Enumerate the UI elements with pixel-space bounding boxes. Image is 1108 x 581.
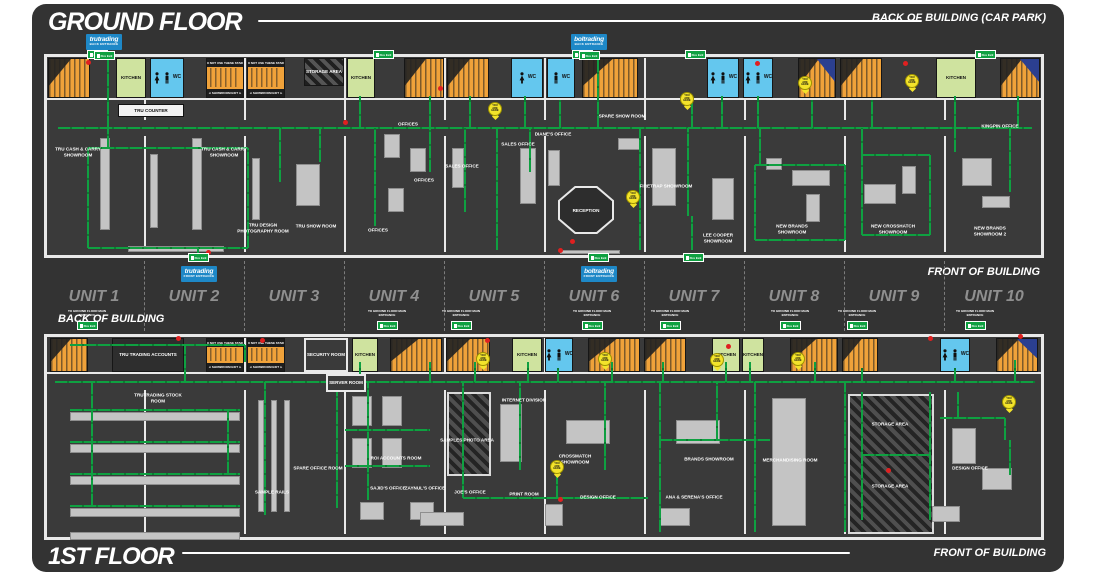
evacuation-route [759,128,761,165]
pin-label: YOUAREHERE [626,190,640,204]
running-man-icon [90,53,93,57]
unit-separator [944,261,945,331]
running-man-icon [978,53,981,57]
wc-label: WC [764,75,772,81]
fire-exit-label: Fire Exit [458,324,470,328]
room-label: SALES OFFICE [489,141,547,147]
pin-label: YOUAREHERE [598,352,612,366]
evacuation-route [1009,440,1011,475]
furniture [284,400,290,512]
you-are-here-pin: YOUAREHERE [488,102,503,121]
room-label: NEW BRANDS SHOWROOM [763,224,821,235]
room-label: DIANE'S OFFICE [524,131,582,137]
evacuation-route [429,362,431,382]
wc-label: WC [528,75,536,81]
you-are-here-pin: YOUAREHERE [476,352,491,371]
entrance-label: BACK ENTRANCE [90,43,119,47]
you-are-here-pin: YOUAREHERE [798,76,813,95]
wc-male-icon [552,72,560,84]
furniture [382,396,402,426]
small-room-label: SERVER ROOM [329,381,363,386]
stair-direction-note: TO GROUND FLOOR MAIN ENTRANCE [67,310,107,317]
room-label: KINGPIN OFFICE [971,123,1029,129]
evacuation-route [861,128,863,155]
evacuation-route [861,155,863,235]
furniture [410,148,426,172]
fire-alarm-dot [343,120,348,125]
band-top-exit-sign: Fire Exit [188,253,209,262]
room-label: DESIGN OFFICE [569,494,627,500]
unit-label-5: UNIT 5 [444,288,544,306]
stairs-cell [582,58,638,98]
stair-treads [210,348,240,361]
fire-exit-label: Fire Exit [692,53,704,57]
stairs-cell [404,58,444,98]
entrance-exit-sign: Fire Exit [579,51,600,60]
furniture [384,134,400,158]
unit-label-4: UNIT 4 [344,288,444,306]
unit-wall [344,136,346,252]
wc-female-icon [709,72,717,84]
wc-female-icon [518,72,526,84]
showroom-exit-label: ◄ SHOWROOM EXIT ► [248,89,284,97]
furniture [932,506,960,522]
unit-wall [344,58,346,120]
wc-cell: WC [511,58,543,98]
unit-wall [644,390,646,534]
evacuation-route [345,429,430,431]
room-label: OFFICES [349,227,407,233]
room-label: NEW BRANDS SHOWROOM 2 [961,226,1019,237]
pin-label: YOUAREHERE [550,460,564,474]
stairs-cell [1000,58,1040,98]
evacuation-route [527,362,529,382]
entrance-badge: boltradingBACK ENTRANCE [571,34,607,50]
fire-exit-sign: Fire Exit [373,50,394,59]
you-are-here-pin: YOUAREHERE [626,190,641,209]
unit-wall [444,136,446,252]
evacuation-route [107,56,109,128]
stairs-cell [644,338,686,372]
furniture [352,396,372,426]
room-label: SPARE SHOW ROOM [593,113,651,119]
evacuation-route [929,155,931,235]
showroom-exit-label: ◄ SHOWROOM EXIT ► [248,363,284,371]
furniture [382,438,402,468]
running-man-icon [663,324,666,328]
fire-exit-sign: Fire Exit [685,50,706,59]
kitchen-label: KITCHEN [517,353,537,358]
pin-label: YOUAREHERE [1002,395,1016,409]
first-floor-title: 1ST FLOOR [48,543,174,571]
evacuation-route [264,382,266,515]
running-man-icon [686,256,689,260]
evacuation-route [954,368,956,382]
evacuation-route [871,100,873,128]
fire-exit-label: Fire Exit [854,324,866,328]
furniture [806,194,820,222]
evacuation-route [1009,128,1011,192]
fire-exit-label: Fire Exit [589,324,601,328]
fire-alarm-dot [176,336,181,341]
pin-label: YOUAREHERE [905,74,919,88]
do-not-use-stairs-label: DO NOT USE THESE STAIRS [248,59,284,67]
evacuation-route [244,345,246,362]
evacuation-route [754,165,756,240]
storage-label: STORAGE AREA [306,70,342,75]
wc-female-icon [153,72,161,84]
wc-cell: WC [707,58,739,98]
evacuation-route [429,128,431,172]
evacuation-route [70,505,240,507]
pin-label: YOUAREHERE [680,92,694,106]
furniture [388,188,404,212]
unit-separator [144,261,145,331]
stairs-cell [996,338,1038,372]
evacuation-route [359,96,361,128]
entrance-badge: trutradingFRONT ENTRANCE [181,266,217,282]
showroom-front-sign: DO NOT USE THESE STAIRS◄ SHOWROOM EXIT ► [247,58,285,98]
evacuation-route [862,454,930,456]
kitchen-cell: KITCHEN [352,338,378,372]
storage-cell: STORAGE AREA [304,58,344,86]
footer-rule [182,552,850,554]
room-label: MERCHANDISING ROOM [761,457,819,463]
running-man-icon [968,324,971,328]
strip-room-label: TRU TRADING ACCOUNTS [119,353,177,358]
evacuation-route [757,96,759,128]
stairs-cell [840,58,882,98]
unit-wall [544,58,546,120]
evacuation-route [279,128,281,182]
do-not-use-stairs-label: DO NOT USE THESE STAIRS [248,339,284,347]
band-bottom-exit-sign: Fire Exit [660,321,681,330]
stair-direction-note: TO GROUND FLOOR MAIN ENTRANCE [955,310,995,317]
evacuation-route [70,441,240,443]
evacuation-route [55,381,1035,383]
furniture [982,468,1012,490]
kitchen-label: KITCHEN [121,76,141,81]
fire-exit-label: Fire Exit [380,53,392,57]
evacuation-route [184,345,186,382]
you-are-here-pin: YOUAREHERE [905,74,920,93]
reception-label: RECEPTION [560,188,612,232]
running-man-icon [582,54,585,58]
running-man-icon [591,256,594,260]
furniture [420,512,464,526]
band-bottom-exit-sign: Fire Exit [451,321,472,330]
furniture [618,138,640,150]
room-label: SAMPLES PHOTO AREA [438,437,496,443]
wc-female-icon [744,72,752,84]
evacuation-route [519,382,521,470]
room-label: STORAGE AREA [861,483,919,489]
fire-alarm-dot [485,338,490,343]
unit-label-9: UNIT 9 [844,288,944,306]
furniture [70,412,240,421]
showroom-exit-label: ◄ SHOWROOM EXIT ► [207,363,243,371]
entrance-badge: boltradingFRONT ENTRANCE [581,266,617,282]
room-label: ANA & SERENA'S OFFICE [665,494,723,500]
you-are-here-pin: YOUAREHERE [1002,395,1017,414]
evacuation-route [107,128,109,148]
entrance-label: FRONT ENTRANCE [184,275,215,279]
evacuation-route [659,382,661,532]
band-bottom-exit-sign: Fire Exit [77,321,98,330]
entrance-exit-sign: Fire Exit [94,51,115,60]
evacuation-plan-poster: GROUND FLOOR BACK OF BUILDING (CAR PARK)… [0,0,1108,581]
furniture [70,532,240,540]
unit-separator [444,261,445,331]
unit-wall [244,58,246,120]
evacuation-route [345,465,430,467]
furniture [70,444,240,453]
wc-cell: WC [547,58,575,98]
furniture [864,184,896,204]
stair-treads [251,348,281,361]
ground-floor-title: GROUND FLOOR [48,8,242,37]
room-label: TRUTRADING STOCK ROOM [129,393,187,404]
room-label: LEE COOPER SHOWROOM [689,233,747,244]
stair-direction-note: TO GROUND FLOOR MAIN ENTRANCE [441,310,481,317]
evacuation-route [725,362,727,382]
entrance-badge: trutradingBACK ENTRANCE [86,34,122,50]
furniture [792,170,830,186]
wc-label: WC [729,75,737,81]
wc-male-icon [951,349,959,361]
you-are-here-pin: YOUAREHERE [550,460,565,479]
running-man-icon [585,324,588,328]
room-label: TRU SHOW ROOM [287,223,345,229]
evacuation-route [374,128,376,226]
unit-wall [144,136,146,252]
pin-label: YOUAREHERE [791,352,805,366]
wc-female-icon [941,349,949,361]
band-bottom-exit-sign: Fire Exit [582,321,603,330]
room-label: PRINT ROOM [495,491,553,497]
unit-wall [244,390,246,534]
unit-label-7: UNIT 7 [644,288,744,306]
running-man-icon [850,324,853,328]
running-man-icon [688,53,691,57]
kitchen-label: KITCHEN [946,76,966,81]
unit-label-1: UNIT 1 [44,288,144,306]
evacuation-route [469,96,471,128]
stairs-cell [390,338,442,372]
unit-label-2: UNIT 2 [144,288,244,306]
fire-alarm-dot [570,239,575,244]
fire-alarm-dot [558,248,563,253]
pin-label: YOUAREHERE [798,76,812,90]
evacuation-route [716,382,718,440]
evacuation-route [1004,418,1006,440]
evacuation-route [754,382,756,532]
evacuation-route [862,154,930,156]
evacuation-route [811,100,813,128]
unit-separator [244,261,245,331]
running-man-icon [783,324,786,328]
evacuation-route [604,382,606,470]
header-rule [258,20,922,22]
kitchen-label: KITCHEN [355,353,375,358]
wc-label: WC [562,75,570,81]
fire-exit-label: Fire Exit [384,324,396,328]
pin-label: YOUAREHERE [476,352,490,366]
evacuation-route [755,164,845,166]
stair-direction-note: TO GROUND FLOOR MAIN ENTRANCE [837,310,877,317]
furniture [70,508,240,517]
room-label: TRU CASH & CARRY SHOWROOM [195,147,253,158]
running-man-icon [191,256,194,260]
running-man-icon [97,54,100,58]
fire-exit-label: Fire Exit [101,54,113,58]
running-man-icon [575,53,578,57]
evacuation-route [721,96,723,128]
do-not-use-stairs-label: DO NOT USE THESE STAIRS [207,59,243,67]
you-are-here-pin: YOUAREHERE [791,352,806,371]
fire-alarm-dot [726,344,731,349]
stairs-cell [447,58,489,98]
running-man-icon [376,53,379,57]
stair-direction-note: TO GROUND FLOOR MAIN ENTRANCE [770,310,810,317]
strip-room-label: SECURITY ROOM [307,353,345,358]
stairs-cell [588,338,640,372]
small-room: SERVER ROOM [326,374,366,392]
room-label: ROI ACCOUNTS ROOM [367,455,425,461]
fire-alarm-dot [1018,334,1023,339]
furniture [660,508,690,526]
evacuation-route [1014,360,1016,382]
unit-separator [644,261,645,331]
showroom-front-sign: DO NOT USE THESE STAIRS◄ SHOWROOM EXIT ► [206,58,244,98]
kitchen-label: KITCHEN [743,353,763,358]
fire-alarm-dot [260,338,265,343]
fire-exit-label: Fire Exit [667,324,679,328]
stair-direction-note: TO GROUND FLOOR MAIN ENTRANCE [572,310,612,317]
evacuation-route [844,165,846,240]
band-top-exit-sign: Fire Exit [683,253,704,262]
room-label: JOE'S OFFICE [441,489,499,495]
room-label: OFFICES [395,177,453,183]
running-man-icon [380,324,383,328]
furniture [545,504,563,526]
band-bottom-exit-sign: Fire Exit [377,321,398,330]
fire-exit-label: Fire Exit [586,54,598,58]
unit-wall [544,136,546,252]
unit-separator [344,261,345,331]
furniture [296,164,320,206]
fire-exit-label: Fire Exit [690,256,702,260]
furniture [520,148,536,204]
counter-bar: TRU COUNTER [118,104,184,117]
evacuation-route [367,382,369,500]
furniture [982,196,1010,208]
stairs-cell [48,58,90,98]
furniture [962,158,992,186]
pin-label: YOUAREHERE [710,353,724,367]
you-are-here-pin: YOUAREHERE [710,353,725,372]
wc-cell: WC [150,58,184,98]
room-label: OFFICES [379,121,437,127]
unit-wall [744,390,746,534]
room-label: SALES OFFICE [433,163,491,169]
evacuation-route [814,362,816,382]
fire-alarm-dot [928,336,933,341]
evacuation-route [861,368,863,382]
band-bottom-exit-sign: Fire Exit [847,321,868,330]
hatched-area [447,392,491,476]
pin-label: YOUAREHERE [488,102,502,116]
evacuation-route [227,410,229,474]
fire-alarm-dot [886,468,891,473]
fire-exit-label: Fire Exit [787,324,799,328]
band-bottom-exit-sign: Fire Exit [965,321,986,330]
fire-alarm-dot [86,60,91,65]
evacuation-route [88,247,248,249]
furniture [252,158,260,220]
evacuation-route [755,239,845,241]
unit-wall [944,136,946,252]
wc-label: WC [173,75,181,81]
kitchen-cell: KITCHEN [742,338,764,372]
room-label: TRU CASH & CARRY SHOWROOM [49,147,107,158]
kitchen-label: KITCHEN [351,76,371,81]
running-man-icon [454,324,457,328]
evacuation-route [929,392,931,520]
unit-wall [444,58,446,120]
room-label: STORAGE AREA [861,421,919,427]
unit-wall [644,136,646,252]
unit-separator [744,261,745,331]
unit-separator [844,261,845,331]
evacuation-route [70,344,245,346]
evacuation-route [559,100,561,128]
evacuation-route [957,392,959,418]
wc-male-icon [163,72,171,84]
kitchen-cell: KITCHEN [936,58,976,98]
fire-exit-label: Fire Exit [972,324,984,328]
furniture [902,166,916,194]
evacuation-route [749,362,751,382]
room-label: DESIGN OFFICE [941,465,999,471]
room-label: INTERNET DIVISION [495,397,553,403]
fire-exit-label: Fire Exit [84,324,96,328]
evacuation-route [844,382,846,532]
unit-label-10: UNIT 10 [944,288,1044,306]
strip-room: SECURITY ROOM [304,338,348,372]
furniture [952,428,976,464]
wc-cell: WC [545,338,573,372]
furniture [548,150,560,186]
wc-label: WC [565,352,573,358]
stair-treads [210,68,240,87]
entrance-label: BACK ENTRANCE [575,43,604,47]
stairs-cell [842,338,878,372]
band-top-exit-sign: Fire Exit [588,253,609,262]
back-of-building-note: BACK OF BUILDING (CAR PARK) [872,12,1046,24]
kitchen-cell: KITCHEN [347,58,375,98]
unit-label-6: UNIT 6 [544,288,644,306]
unit-separator [544,261,545,331]
evacuation-route [662,362,664,382]
furniture [150,154,158,228]
entrance-label: FRONT ENTRANCE [584,275,615,279]
evacuation-route [861,392,863,520]
evacuation-route [70,409,240,411]
evacuation-route [319,128,321,162]
furniture [70,476,240,485]
wc-label: WC [961,352,969,358]
